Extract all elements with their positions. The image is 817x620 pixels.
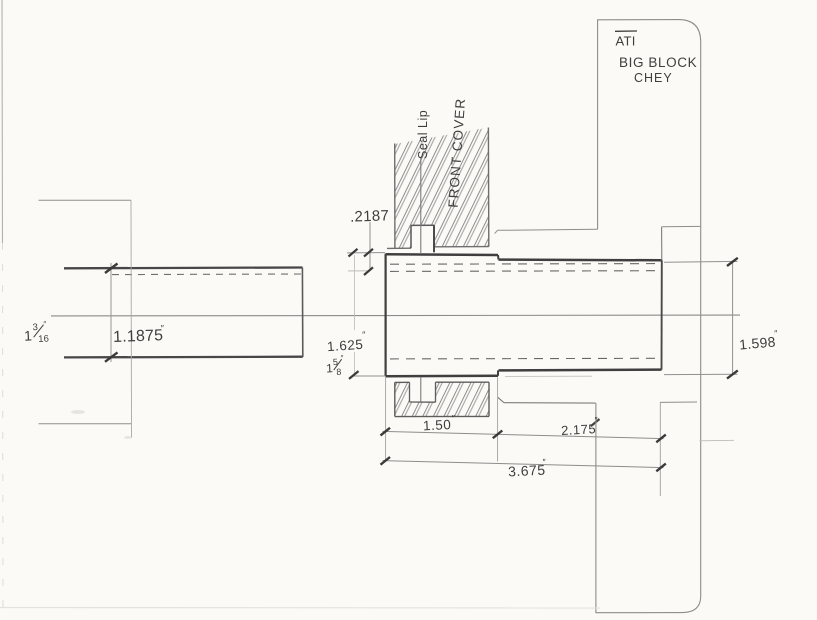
svg-text:1.598: 1.598 [739, 333, 777, 352]
svg-text:1.1875: 1.1875 [113, 327, 164, 346]
svg-text:1.50: 1.50 [423, 417, 452, 433]
svg-text:BIG BLOCK: BIG BLOCK [619, 55, 697, 70]
svg-text:Seal Lip: Seal Lip [416, 110, 430, 159]
svg-text:1: 1 [24, 327, 33, 343]
svg-text:16: 16 [38, 333, 49, 345]
svg-text:CHEY: CHEY [634, 71, 673, 85]
svg-text:3.675: 3.675 [508, 462, 546, 480]
svg-text:ATI: ATI [616, 34, 636, 49]
svg-text:1.625: 1.625 [327, 337, 364, 354]
svg-text:8: 8 [336, 367, 342, 377]
svg-text:3: 3 [32, 322, 38, 333]
svg-text:2.175: 2.175 [561, 421, 597, 438]
